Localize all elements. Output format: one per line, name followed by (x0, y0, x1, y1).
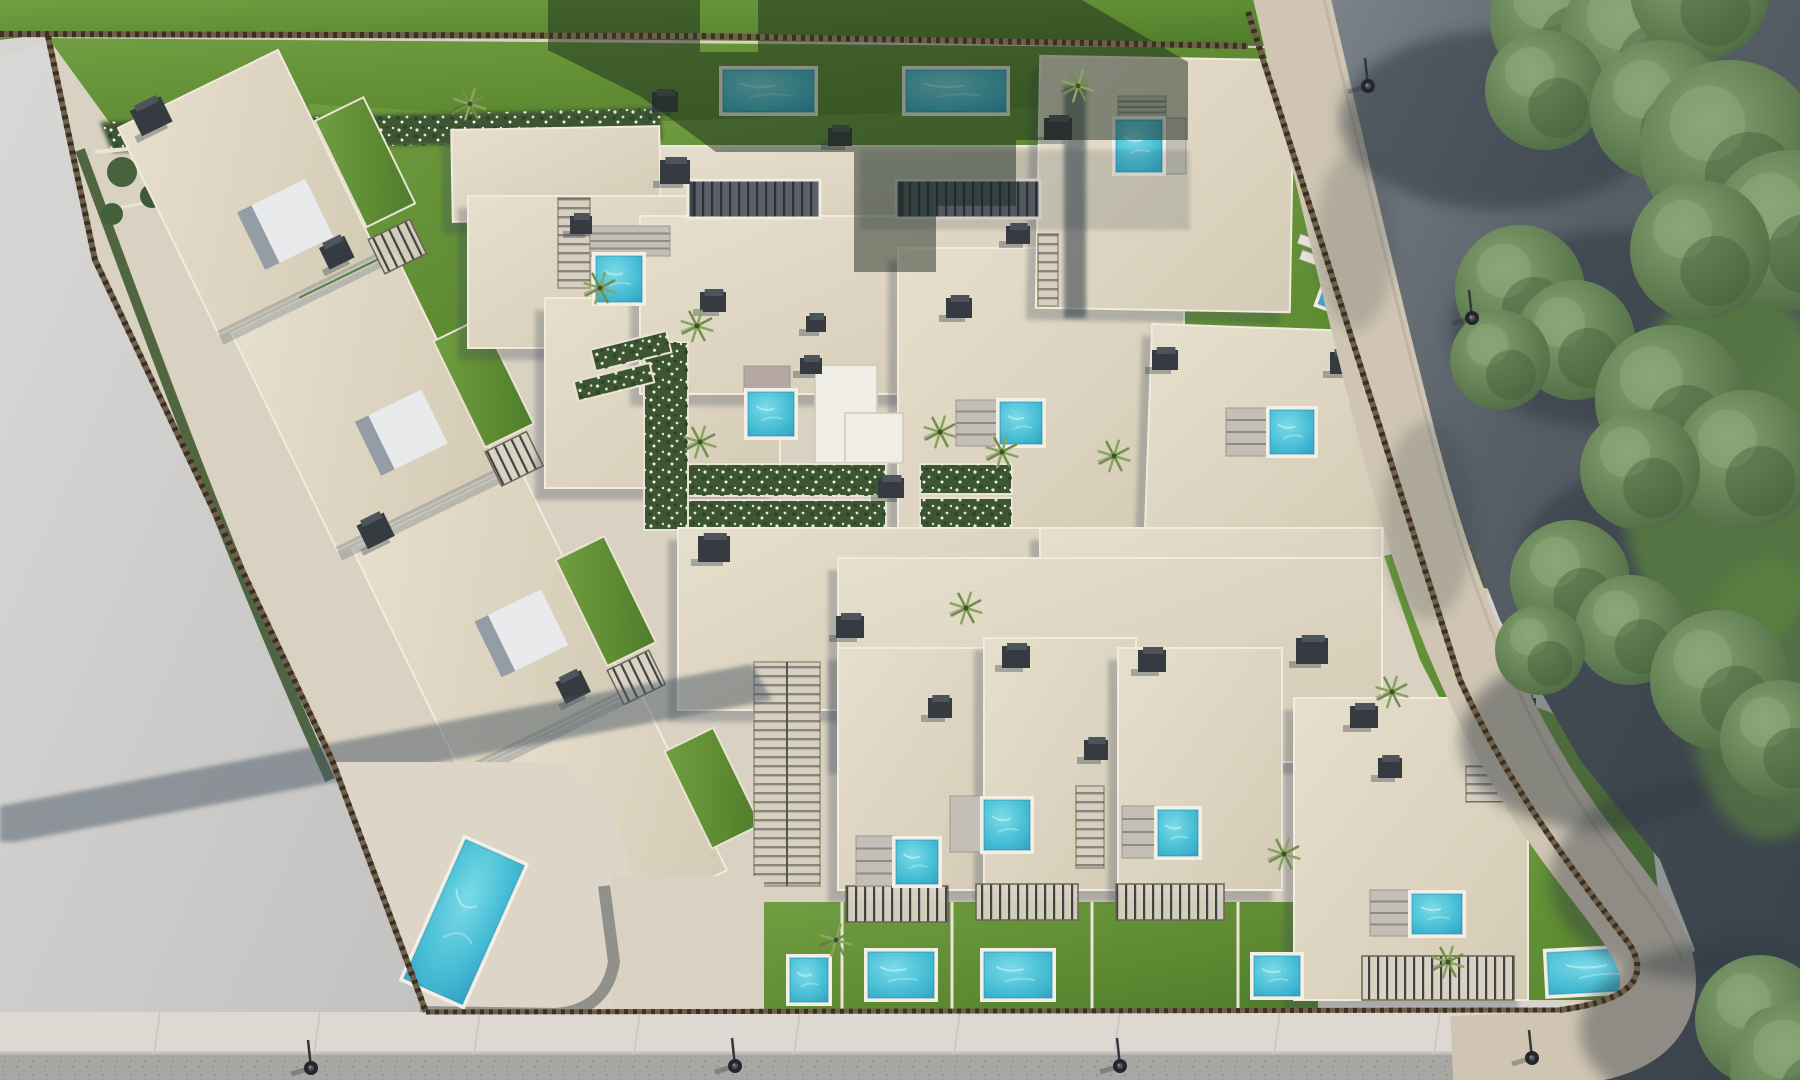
shadow-soft-roofs (860, 150, 1190, 230)
stair (558, 198, 590, 288)
tree-canopy (1450, 310, 1550, 410)
leaf-shadow-sidewalk (1315, 150, 1395, 330)
scene-layers (0, 0, 1800, 1080)
walkway-entry (612, 876, 764, 1012)
planter (920, 498, 1012, 528)
sun-deck (950, 796, 982, 852)
stair (1076, 786, 1104, 868)
pool-garden (980, 948, 1056, 1002)
pool-roof (996, 398, 1046, 448)
roof-terrace (688, 180, 820, 218)
tree-canopy (1580, 410, 1700, 530)
porch-railing (846, 886, 948, 922)
pool-garden (864, 948, 938, 1002)
leaf-shadow-sidewalk (1382, 420, 1474, 620)
pool-garden (1250, 952, 1304, 1000)
pool-roof (892, 836, 942, 888)
planter (920, 464, 1012, 494)
porch-railing (976, 884, 1078, 920)
pool-roof (1154, 806, 1202, 860)
pool-roof (744, 388, 798, 440)
tree-canopy (1495, 605, 1585, 695)
sun-deck (856, 836, 894, 886)
sun-deck (1226, 408, 1268, 456)
porch-railing (1362, 956, 1514, 1000)
sun-deck (956, 400, 998, 446)
site-plan-svg (0, 0, 1800, 1080)
porch-railing (1116, 884, 1224, 920)
sidewalk-bottom (0, 1012, 1620, 1056)
aerial-site-render (0, 0, 1800, 1080)
sun-deck (1122, 806, 1156, 858)
shrub (101, 203, 123, 225)
sun-deck (1370, 890, 1410, 936)
planter (688, 500, 886, 530)
pool-garden (786, 954, 832, 1006)
tree-canopy (1485, 30, 1605, 150)
pool-roof (1266, 406, 1318, 458)
pool-roof (1408, 890, 1466, 938)
pool-roof (980, 796, 1034, 854)
pool-roof (592, 252, 646, 306)
stair-bulkhead (845, 413, 903, 463)
planter (688, 464, 886, 496)
shrub (107, 157, 137, 187)
tree-canopy (1630, 180, 1770, 320)
sun-deck (590, 226, 670, 256)
stair (1038, 234, 1058, 306)
